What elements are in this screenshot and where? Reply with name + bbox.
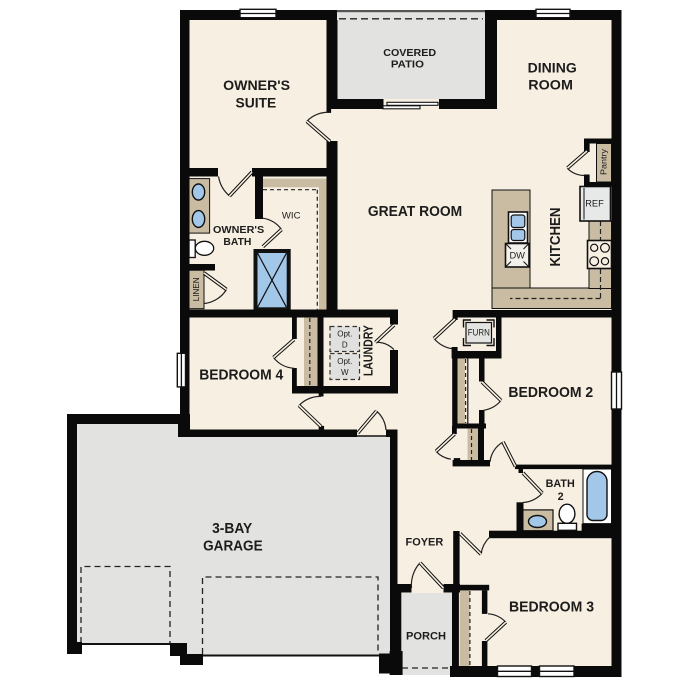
svg-text:DW: DW [509, 250, 525, 261]
svg-text:Pantry: Pantry [599, 149, 608, 175]
svg-text:KITCHEN: KITCHEN [547, 208, 564, 267]
svg-text:Opt.: Opt. [337, 329, 352, 338]
svg-text:GREAT ROOM: GREAT ROOM [368, 204, 462, 220]
svg-text:BATH: BATH [223, 237, 251, 248]
svg-text:FURN: FURN [468, 328, 490, 339]
svg-text:PATIO: PATIO [391, 60, 425, 71]
svg-text:WIC: WIC [282, 211, 301, 222]
svg-text:3-BAY: 3-BAY [212, 521, 253, 537]
svg-text:DINING: DINING [528, 60, 577, 75]
svg-text:W: W [341, 368, 349, 377]
svg-text:BATH: BATH [546, 478, 575, 490]
svg-text:GARAGE: GARAGE [203, 538, 263, 554]
svg-text:OWNER'S: OWNER'S [223, 78, 290, 94]
svg-text:PORCH: PORCH [406, 631, 446, 643]
svg-text:BEDROOM 2: BEDROOM 2 [508, 385, 593, 401]
svg-text:D: D [342, 341, 348, 350]
svg-text:FOYER: FOYER [406, 536, 444, 548]
svg-text:LAUNDRY: LAUNDRY [361, 325, 376, 376]
svg-text:COVERED: COVERED [383, 48, 436, 59]
svg-text:ROOM: ROOM [528, 77, 573, 92]
svg-text:2: 2 [558, 491, 564, 503]
svg-text:Opt.: Opt. [337, 357, 352, 366]
svg-text:LINEN: LINEN [192, 277, 201, 301]
svg-text:OWNER'S: OWNER'S [213, 225, 265, 236]
svg-text:BEDROOM 4: BEDROOM 4 [199, 368, 284, 384]
svg-text:BEDROOM 3: BEDROOM 3 [509, 600, 594, 616]
svg-text:SUITE: SUITE [236, 96, 277, 112]
svg-text:REF: REF [585, 199, 604, 210]
